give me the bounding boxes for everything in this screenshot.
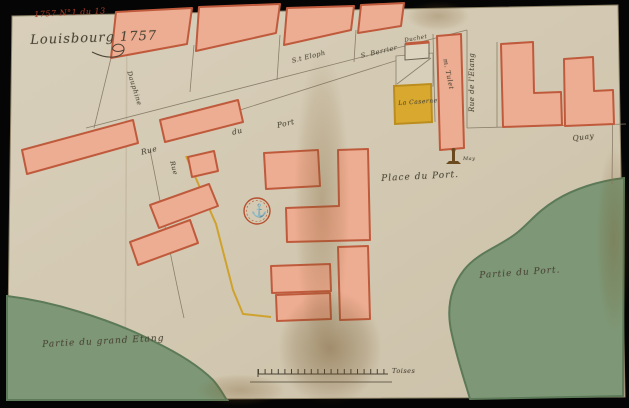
block-tulet	[437, 34, 464, 150]
street-label-etang: Rue de l'Etang	[468, 53, 476, 112]
post-marker-label: May	[463, 156, 475, 162]
scale-unit-label: Toises	[392, 367, 415, 375]
anchor-icon: ⚓	[251, 204, 267, 219]
scanned-map-photo: 1757 N°1 du 13 Louisbourg 1757 Dauphine …	[0, 0, 629, 408]
